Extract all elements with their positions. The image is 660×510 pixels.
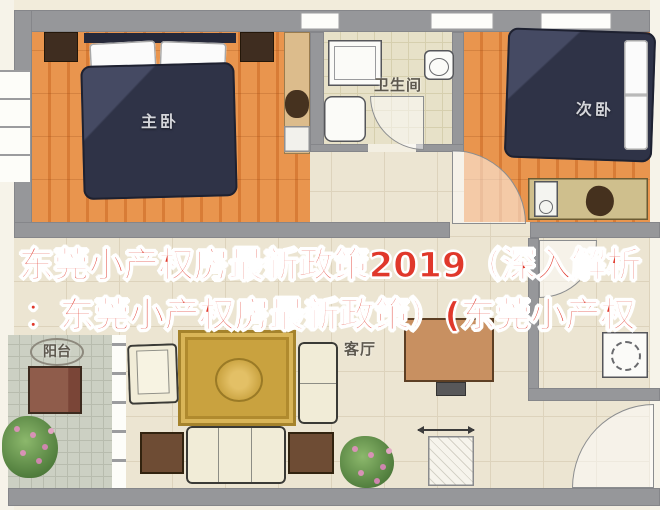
window-top-3 xyxy=(540,12,612,30)
wall-bottom xyxy=(8,488,660,506)
wall-entry-horizontal xyxy=(528,388,660,401)
master-bed xyxy=(80,62,237,200)
two-seat-sofa xyxy=(298,342,338,424)
wall-middle-right xyxy=(530,222,660,238)
floorplan-article-cover: 主卧 卫生间 次卧 阳台 客厅 东莞小产权房最新政策2019（深入解析 ：东莞小… xyxy=(0,0,660,510)
second-bedroom-label: 次卧 xyxy=(556,95,635,120)
master-bed-headboard xyxy=(84,33,236,43)
nightstand-left xyxy=(44,32,78,62)
dimension-arrow xyxy=(418,429,474,431)
living-room-plant xyxy=(340,436,394,488)
nightstand-right xyxy=(240,32,274,62)
wall-middle-left xyxy=(14,222,450,238)
master-chair xyxy=(285,90,309,118)
window-top-2 xyxy=(430,12,494,30)
balcony-plant xyxy=(2,416,58,478)
bathroom-label: 卫生间 xyxy=(362,74,434,94)
desk-cabinet xyxy=(534,181,558,217)
wall-master-bathroom xyxy=(310,32,324,152)
headline-overlay: 东莞小产权房最新政策2019（深入解析 ：东莞小产权房最新政策）(东莞小产权 xyxy=(0,241,660,341)
side-table-right xyxy=(288,432,334,474)
living-room-rug xyxy=(178,330,296,426)
wall-bathroom-second xyxy=(452,32,464,152)
master-bedroom-label: 主卧 xyxy=(118,108,202,130)
living-room-label: 客厅 xyxy=(334,338,386,358)
entry-mat xyxy=(428,436,474,486)
side-table-left xyxy=(140,432,184,474)
window-top-1 xyxy=(300,12,340,30)
master-side-table xyxy=(284,126,310,152)
three-seat-sofa xyxy=(186,426,286,484)
headline-line-1: 东莞小产权房最新政策2019（深入解析 xyxy=(0,241,660,291)
headline-line-2: ：东莞小产权房最新政策）(东莞小产权 xyxy=(0,291,660,341)
armchair xyxy=(127,343,179,405)
window-left xyxy=(0,70,30,182)
balcony-label: 阳台 xyxy=(30,338,84,366)
second-bed-pillows xyxy=(624,40,648,150)
balcony-sliding-door xyxy=(112,335,126,488)
washbasin xyxy=(324,96,366,142)
balcony-cabinet xyxy=(28,366,82,414)
